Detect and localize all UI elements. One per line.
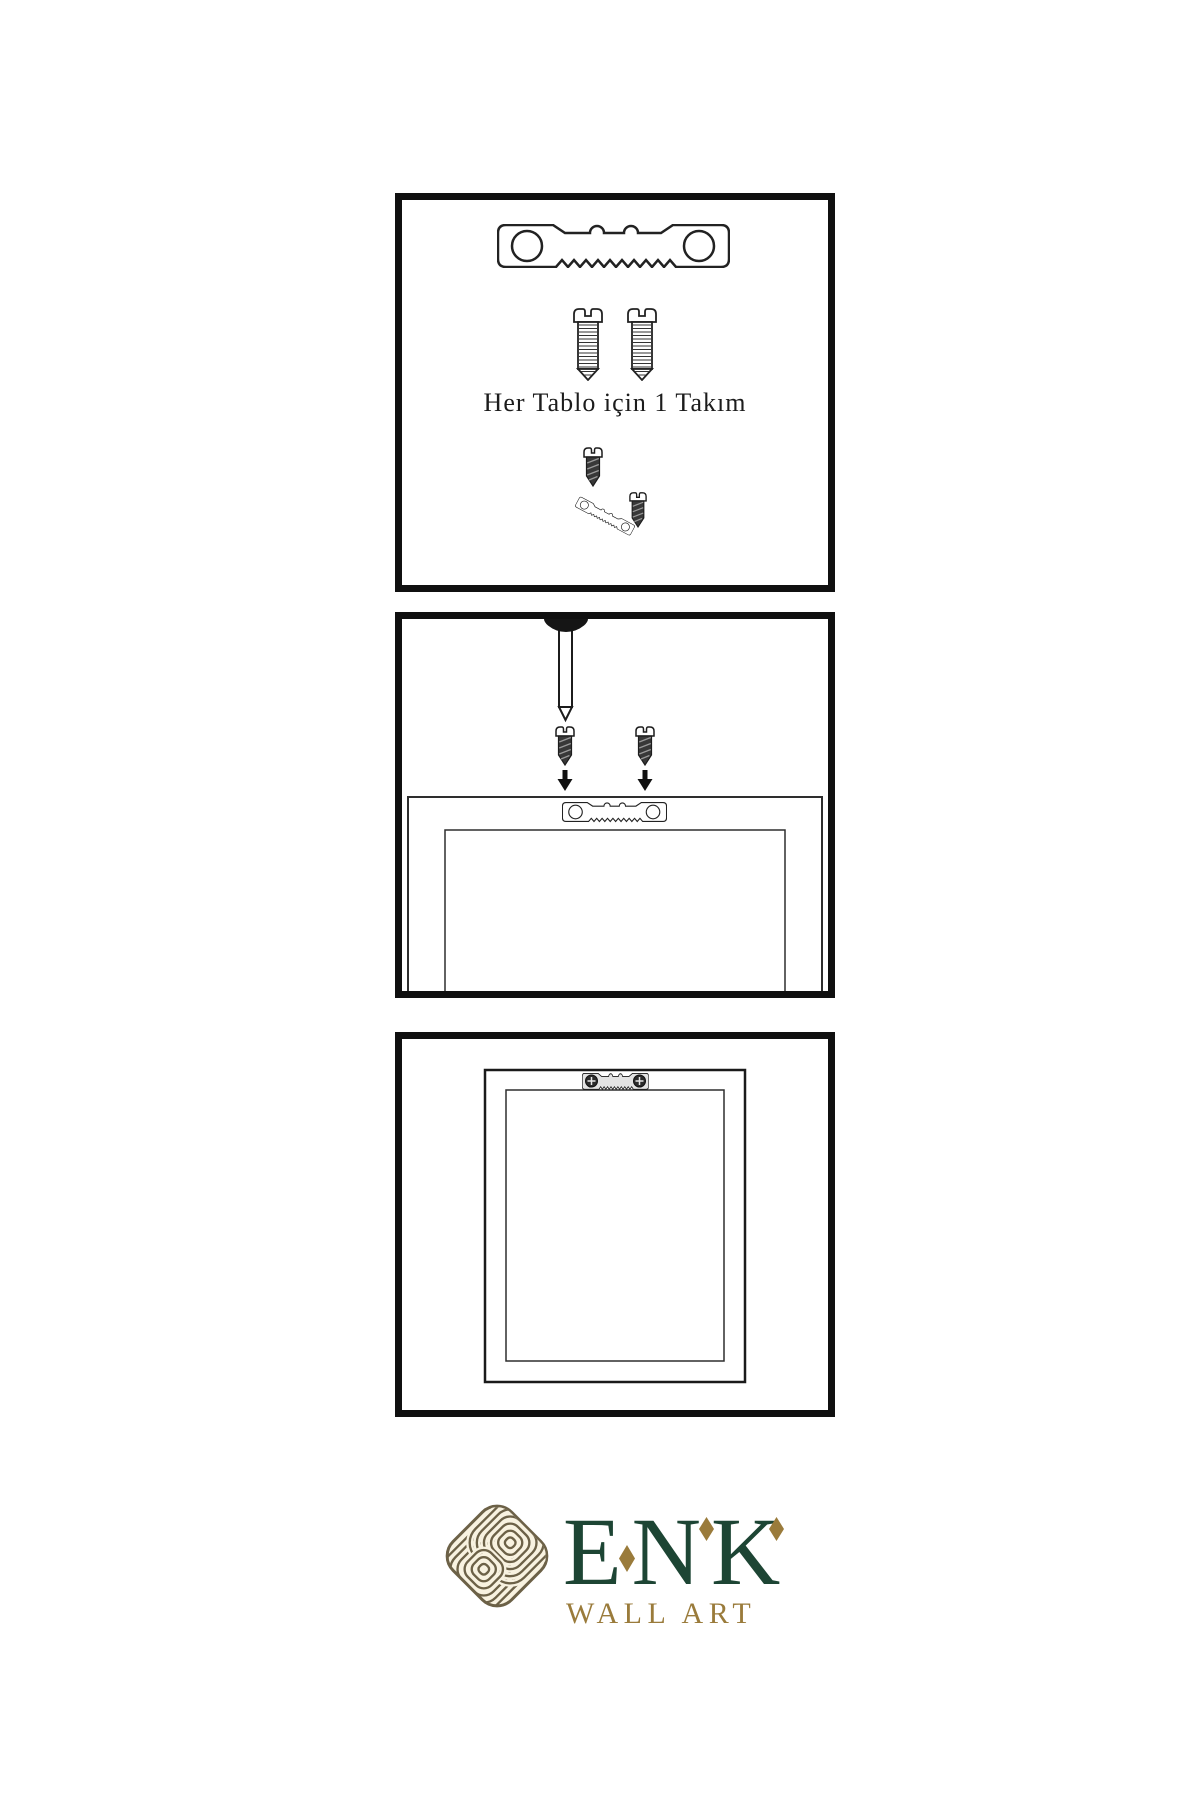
step-2-panel — [395, 612, 835, 998]
down-arrow-icon — [638, 770, 653, 791]
hung-frame-illustration — [402, 1039, 828, 1410]
frame-back-icon — [408, 797, 822, 991]
step-3-panel — [395, 1032, 835, 1417]
step-1-content: Her Tablo için 1 Takım — [402, 200, 828, 585]
sawtooth-hanger-icon — [498, 225, 729, 267]
screw-into-hanger-icon — [575, 448, 646, 536]
dark-screw-icon — [636, 727, 654, 765]
wall-nail-icon — [544, 619, 588, 720]
dark-screw-icon — [556, 727, 574, 765]
instruction-sheet: { "document": { "type": "wall-art-hangin… — [0, 0, 1200, 1800]
down-arrow-icon — [558, 770, 573, 791]
phillips-screw-head-icon — [586, 1075, 598, 1087]
brand-tagline: WALL ART — [566, 1599, 756, 1629]
picture-frame-icon — [485, 1070, 745, 1382]
step-1-panel: Her Tablo için 1 Takım — [395, 193, 835, 592]
screw-icon — [628, 309, 656, 380]
step-2-content — [402, 619, 828, 991]
screw-icon — [574, 309, 602, 380]
step-3-content — [402, 1039, 828, 1410]
interlocked-knot-icon — [438, 1497, 556, 1615]
brand-name: ENK — [563, 1504, 790, 1600]
mounting-illustration — [402, 619, 828, 991]
phillips-screw-head-icon — [634, 1075, 646, 1087]
step-1-caption: Her Tablo için 1 Takım — [402, 388, 828, 418]
